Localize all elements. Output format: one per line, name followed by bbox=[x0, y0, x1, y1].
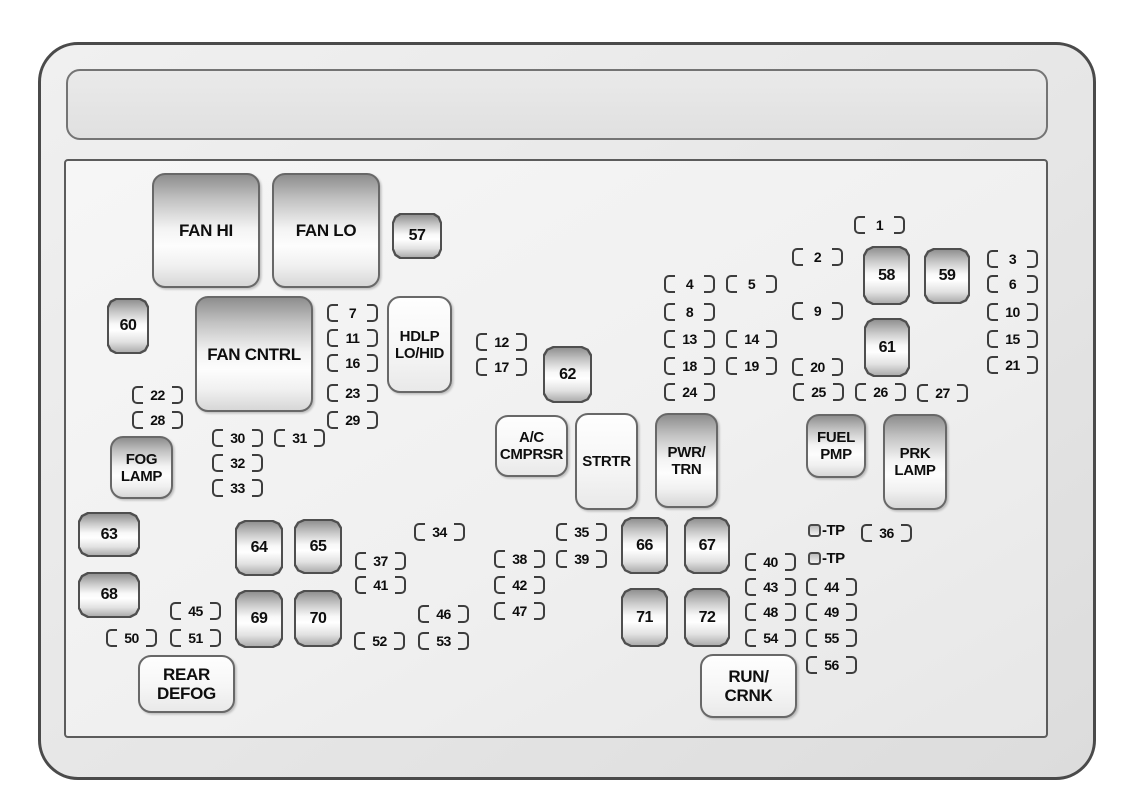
tp-square-icon bbox=[808, 524, 821, 537]
tp-marker-layer: -TP-TP bbox=[0, 0, 1143, 808]
tp-marker-2-label: -TP bbox=[822, 550, 845, 567]
tp-marker-2: -TP bbox=[808, 551, 845, 566]
tp-square-icon bbox=[808, 552, 821, 565]
tp-marker-1: -TP bbox=[808, 523, 845, 538]
tp-marker-1-label: -TP bbox=[822, 522, 845, 539]
engine-fuse-box-diagram: FAN HIFAN LOFAN CNTRLHDLPLO/HIDFOGLAMPA/… bbox=[0, 0, 1143, 808]
